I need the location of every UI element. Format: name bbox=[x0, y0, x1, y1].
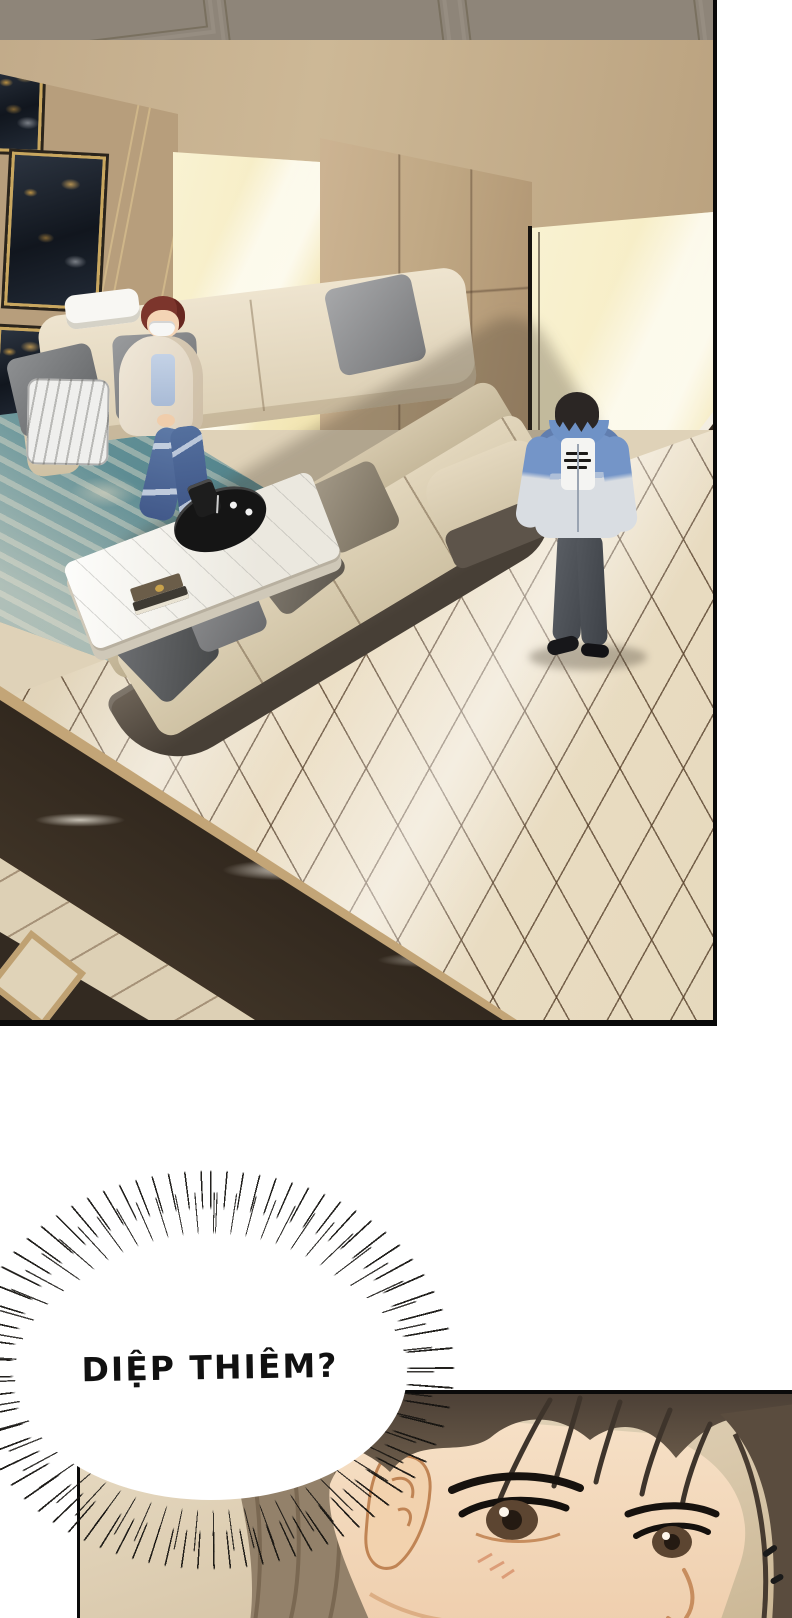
right-eye-highlight bbox=[662, 1532, 670, 1540]
living-room-panel bbox=[0, 0, 717, 1026]
artwork-texture bbox=[7, 155, 103, 307]
left-eye-highlight bbox=[499, 1507, 509, 1517]
book-emblem bbox=[154, 584, 165, 593]
pants-leg bbox=[576, 533, 608, 646]
character-standing-man bbox=[523, 392, 647, 670]
blue-shirt bbox=[151, 354, 175, 406]
bubble-text: DIỆP THIÊM? bbox=[25, 1345, 396, 1390]
tray-item bbox=[229, 501, 238, 510]
book-stack bbox=[127, 570, 190, 616]
face-mask bbox=[149, 321, 175, 336]
gray-pillow bbox=[323, 273, 427, 377]
jacket-zipper bbox=[577, 444, 579, 532]
striped-pillow bbox=[26, 378, 109, 465]
framed-artwork bbox=[4, 152, 106, 311]
tray-item bbox=[244, 507, 253, 516]
clasped-hands bbox=[157, 414, 175, 427]
scream-bubble: DIỆP THIÊM? bbox=[0, 1170, 455, 1570]
